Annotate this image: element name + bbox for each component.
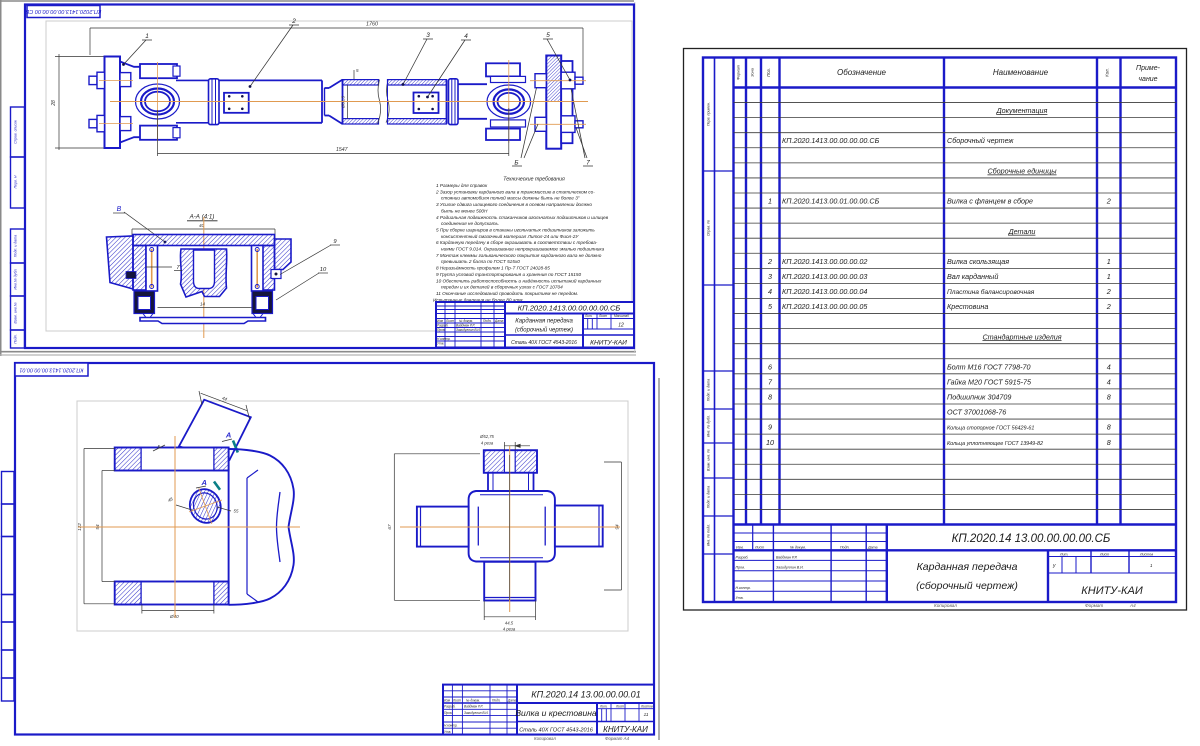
svg-text:Дата: Дата	[494, 319, 504, 323]
svg-text:А-А (4:1): А-А (4:1)	[189, 214, 215, 221]
svg-text:12: 12	[618, 323, 624, 329]
svg-text:2: 2	[291, 18, 296, 25]
svg-text:1760: 1760	[366, 22, 378, 28]
svg-text:Копировал: Копировал	[534, 736, 556, 741]
svg-text:Сборочные единицы: Сборочные единицы	[987, 167, 1057, 176]
svg-text:Пластина балансировочная: Пластина балансировочная	[947, 288, 1035, 296]
svg-text:5: 5	[356, 68, 359, 73]
svg-text:Ø40: Ø40	[169, 614, 179, 619]
svg-text:КП.2020.1413.00.00.00.00.СБ: КП.2020.1413.00.00.00.00.СБ	[518, 304, 621, 313]
svg-text:Документация: Документация	[996, 106, 1048, 115]
svg-text:Подп.: Подп.	[14, 334, 18, 344]
svg-text:Вайдман Р.Р.: Вайдман Р.Р.	[776, 556, 798, 560]
svg-text:Листов: Листов	[640, 705, 653, 709]
svg-text:28: 28	[51, 100, 57, 107]
svg-text:Вилка скользящая: Вилка скользящая	[947, 257, 1009, 266]
svg-text:Вал карданный: Вал карданный	[947, 272, 998, 281]
svg-text:1: 1	[1107, 257, 1111, 266]
svg-text:10: 10	[320, 267, 327, 273]
svg-text:Н.контр.: Н.контр.	[444, 724, 458, 728]
svg-text:Дата: Дата	[507, 699, 517, 703]
svg-text:Изм: Изм	[437, 319, 444, 323]
svg-text:4: 4	[768, 287, 772, 296]
svg-text:А: А	[200, 478, 206, 487]
svg-text:Подп. и дата: Подп. и дата	[706, 486, 710, 509]
svg-text:Лист: Лист	[1099, 552, 1109, 556]
svg-text:(сборочный чертеж): (сборочный чертеж)	[916, 580, 1018, 592]
svg-text:чание: чание	[1138, 76, 1157, 83]
svg-text:КНИТУ-КАИ: КНИТУ-КАИ	[603, 725, 648, 734]
svg-text:Формат: Формат	[1085, 603, 1103, 608]
svg-text:10: 10	[766, 438, 774, 447]
svg-text:Подп.: Подп.	[840, 546, 850, 550]
svg-text:ОСТ 37001068-76: ОСТ 37001068-76	[947, 408, 1006, 417]
svg-text:9: 9	[768, 423, 772, 432]
svg-text:Вилка и крестовина: Вилка и крестовина	[515, 708, 597, 718]
svg-text:7: 7	[176, 265, 180, 271]
svg-text:1: 1	[1107, 272, 1111, 281]
svg-text:Изм: Изм	[444, 699, 451, 703]
svg-text:Взам. инв. №: Взам. инв. №	[706, 449, 710, 471]
svg-text:Изм.: Изм.	[736, 546, 744, 550]
svg-text:Справ. №: Справ. №	[706, 220, 710, 236]
svg-text:Сталь 40Х ГОСТ 4543-2016: Сталь 40Х ГОСТ 4543-2016	[511, 340, 577, 346]
svg-text:Пров.: Пров.	[736, 566, 745, 570]
svg-text:КП.2020.1413.00.00.00.00.СБ: КП.2020.1413.00.00.00.00.СБ	[782, 136, 880, 145]
svg-text:11: 11	[644, 712, 649, 717]
svg-text:8: 8	[1107, 423, 1111, 432]
svg-text:КП.2020.14 13.00.00.00.00.СБ: КП.2020.14 13.00.00.00.00.СБ	[952, 533, 1111, 545]
svg-text:Утв.: Утв.	[444, 730, 451, 734]
svg-text:Утв.: Утв.	[736, 596, 744, 600]
svg-text:Болт М16 ГОСТ 7798-70: Болт М16 ГОСТ 7798-70	[947, 362, 1031, 371]
svg-text:Карданная передача: Карданная передача	[917, 561, 1018, 573]
svg-text:Подп. и дата: Подп. и дата	[14, 235, 18, 258]
svg-text:Формат: Формат	[737, 65, 741, 80]
svg-text:Инв.№ дубл.: Инв.№ дубл.	[14, 268, 18, 289]
svg-text:1: 1	[1150, 563, 1153, 568]
svg-text:№ докум.: № докум.	[790, 546, 806, 550]
svg-text:Приме-: Приме-	[1136, 65, 1161, 72]
svg-text:Инв. № дубл.: Инв. № дубл.	[706, 415, 710, 437]
svg-text:Вайдман Р.Р.: Вайдман Р.Р.	[456, 324, 476, 328]
svg-text:8: 8	[768, 393, 772, 402]
svg-text:Лист: Лист	[452, 699, 462, 703]
svg-text:2: 2	[1106, 197, 1111, 206]
svg-text:Лист: Лист	[615, 705, 625, 709]
svg-text:№ докум.: № докум.	[466, 699, 480, 703]
svg-text:48: 48	[167, 496, 174, 503]
svg-text:7: 7	[768, 378, 773, 387]
svg-text:Загидуллин В.И.: Загидуллин В.И.	[464, 711, 489, 715]
svg-text:Вилка с фланцем в сборе: Вилка с фланцем в сборе	[947, 197, 1033, 206]
svg-text:2: 2	[1106, 287, 1111, 296]
svg-text:2 Зазор установки карданного: 2 Зазор установки карданного вала в тран…	[435, 189, 595, 194]
svg-text:Разраб.: Разраб.	[444, 705, 456, 709]
svg-text:1: 1	[145, 33, 149, 40]
svg-text:превышать 2 балла по ГОСТ 515х: превышать 2 балла по ГОСТ 515х0	[441, 259, 520, 264]
svg-text:Пров.: Пров.	[444, 711, 453, 715]
svg-text:Подп.: Подп.	[492, 699, 501, 703]
svg-text:1: 1	[768, 197, 772, 206]
svg-text:ниями ГОСТ 9.014. Окрашивание: ниями ГОСТ 9.014. Окрашивание непрокраши…	[441, 247, 605, 252]
svg-text:Пров.: Пров.	[437, 328, 446, 332]
svg-text:Кольца уплотняющее ГОСТ 13949-: Кольца уплотняющее ГОСТ 13949-82	[947, 441, 1043, 447]
svg-text:передач и их деталей в сборочн: передач и их деталей в сборочных узлах с…	[441, 284, 563, 290]
svg-text:Листов: Листов	[1139, 552, 1153, 556]
svg-text:В: В	[117, 206, 122, 213]
svg-text:А: А	[225, 431, 231, 440]
svg-text:7 Монтаж клеммы гальваническо: 7 Монтаж клеммы гальванического покрытия…	[436, 253, 602, 258]
svg-text:(сборочный чертеж): (сборочный чертеж)	[515, 327, 573, 334]
svg-text:КП.2020.1413.00.00.00.00 СБ: КП.2020.1413.00.00.00.00 СБ	[25, 8, 101, 14]
svg-text:1 Размеры для справок: 1 Размеры для справок	[436, 183, 488, 188]
svg-text:КНИТУ-КАИ: КНИТУ-КАИ	[1081, 585, 1143, 597]
svg-text:Перв. примен.: Перв. примен.	[706, 102, 710, 126]
svg-text:Разраб.: Разраб.	[736, 556, 749, 560]
svg-text:Крестовина: Крестовина	[947, 302, 988, 311]
svg-text:Масштаб: Масштаб	[614, 314, 629, 318]
svg-text:4 реза: 4 реза	[481, 441, 494, 446]
svg-text:2: 2	[767, 257, 772, 266]
svg-text:Формат А4: Формат А4	[605, 736, 630, 741]
svg-text:44,5: 44,5	[505, 621, 514, 626]
svg-text:Взам. инв.№: Взам. инв.№	[14, 302, 18, 323]
svg-text:КП.2020.1413.00.01.00.00.СБ: КП.2020.1413.00.01.00.00.СБ	[782, 197, 880, 206]
svg-text:Подшипник 304709: Подшипник 304709	[947, 393, 1011, 402]
svg-text:2: 2	[1106, 302, 1111, 311]
svg-text:3: 3	[426, 32, 430, 39]
svg-text:Вайдман Р.Р.: Вайдман Р.Р.	[464, 705, 484, 709]
svg-text:Б: Б	[514, 160, 518, 167]
svg-text:КП.2020.1413.00.00.00.02: КП.2020.1413.00.00.00.02	[782, 257, 867, 266]
svg-text:8: 8	[1107, 438, 1111, 447]
svg-text:Карданная передача: Карданная передача	[515, 319, 573, 325]
svg-text:5: 5	[546, 32, 550, 39]
svg-text:стоянии автомобиля полной масс: стоянии автомобиля полной массы должны б…	[441, 195, 580, 201]
svg-text:Утв.: Утв.	[437, 342, 444, 346]
svg-text:1547: 1547	[336, 147, 349, 153]
svg-text:Н.контр.: Н.контр.	[437, 337, 451, 341]
svg-text:Загидуллин В.И.: Загидуллин В.И.	[776, 566, 804, 570]
svg-text:Поз.: Поз.	[766, 68, 771, 77]
svg-text:№ докум.: № докум.	[459, 319, 473, 323]
svg-text:Справ. список: Справ. список	[14, 120, 18, 144]
svg-text:Кольца стопорное ГОСТ 56429-61: Кольца стопорное ГОСТ 56429-61	[947, 426, 1034, 432]
svg-text:5 При сборке шарниров в стака: 5 При сборке шарниров в стаканы игольчат…	[436, 227, 595, 232]
svg-text:14: 14	[200, 302, 206, 307]
svg-text:Технические требования: Технические требования	[503, 177, 565, 183]
svg-text:Разраб.: Разраб.	[437, 324, 449, 328]
svg-text:Лит.: Лит.	[1059, 552, 1068, 556]
svg-text:Подп.: Подп.	[483, 319, 492, 323]
svg-text:8: 8	[1107, 393, 1111, 402]
svg-text:Загидуллин В.И.: Загидуллин В.И.	[456, 328, 481, 332]
svg-text:Лист: Лист	[754, 546, 764, 550]
svg-text:3 Усилие сдвига шлицевого сое: 3 Усилие сдвига шлицевого соединения в о…	[436, 202, 592, 207]
svg-text:Лит.: Лит.	[599, 705, 608, 709]
svg-text:Наименование: Наименование	[993, 68, 1049, 77]
svg-text:Дата: Дата	[867, 546, 877, 550]
svg-text:Сборочный чертеж: Сборочный чертеж	[947, 136, 1014, 145]
svg-text:Инв. № подл.: Инв. № подл.	[706, 524, 710, 546]
svg-text:3: 3	[768, 272, 772, 281]
svg-text:Подп. и дата: Подп. и дата	[706, 379, 710, 402]
svg-text:6: 6	[768, 362, 772, 371]
svg-text:4: 4	[464, 33, 468, 40]
svg-text:Гайка М20 ГОСТ 5915-75: Гайка М20 ГОСТ 5915-75	[947, 378, 1032, 387]
svg-text:Лист: Лист	[598, 314, 608, 318]
svg-text:КП.2020.1413.00.00.00.03: КП.2020.1413.00.00.00.03	[782, 272, 867, 281]
svg-text:9 Группа условий транспортиро: 9 Группа условий транспортирования и хра…	[436, 271, 581, 277]
svg-text:4 Радиальная подвижность стак: 4 Радиальная подвижность стаканчиков иго…	[436, 215, 609, 220]
svg-text:67: 67	[387, 524, 392, 530]
svg-text:4: 4	[1107, 362, 1111, 371]
svg-text:Перв. Н: Перв. Н	[14, 175, 18, 188]
svg-text:4 реза: 4 реза	[503, 627, 516, 632]
svg-text:КП.2020.14 13.00.00.00.01: КП.2020.14 13.00.00.00.01	[531, 690, 640, 700]
svg-text:Стандартные изделия: Стандартные изделия	[982, 332, 1061, 341]
svg-text:А4: А4	[1129, 603, 1136, 608]
svg-text:консистентный смазочный матери: консистентный смазочный материал Литол-2…	[441, 233, 579, 239]
svg-text:11 Окончание исследований пров: 11 Окончание исследований проводить покр…	[436, 290, 578, 296]
svg-text:у: у	[1052, 563, 1056, 569]
svg-text:КНИТУ-КАИ: КНИТУ-КАИ	[590, 340, 627, 347]
svg-text:8 Неразъёмность профилем 1 Пр: 8 Неразъёмность профилем 1 Пр-Т ГОСТ 240…	[436, 266, 550, 271]
svg-text:КП.2020.1413.00.00.00.01: КП.2020.1413.00.00.00.01	[19, 366, 83, 372]
svg-text:Сталь 40Х ГОСТ 4543-2016: Сталь 40Х ГОСТ 4543-2016	[519, 728, 594, 734]
svg-text:4: 4	[1107, 378, 1111, 387]
svg-text:Детали: Детали	[1008, 227, 1036, 236]
svg-text:Кол.: Кол.	[1105, 68, 1110, 77]
svg-text:Ø52,75: Ø52,75	[479, 434, 494, 439]
svg-text:5: 5	[768, 302, 773, 311]
svg-text:Ø82,5: Ø82,5	[341, 95, 346, 109]
svg-text:Лит.: Лит.	[584, 314, 593, 318]
svg-text:Лист: Лист	[445, 319, 455, 323]
svg-text:КП.2020.1413.00.00.00.04: КП.2020.1413.00.00.00.04	[782, 287, 867, 296]
svg-text:55: 55	[234, 509, 239, 514]
svg-text:7: 7	[586, 160, 590, 167]
svg-text:Копировал: Копировал	[934, 603, 957, 608]
svg-text:Н.контр.: Н.контр.	[736, 586, 751, 590]
svg-text:Зона: Зона	[751, 68, 755, 77]
svg-text:6 Карданную передачу в сборе: 6 Карданную передачу в сборе окрашивать …	[436, 240, 598, 245]
svg-text:быть не менее 500Н: быть не менее 500Н	[441, 208, 488, 213]
svg-text:Обозначение: Обозначение	[837, 68, 887, 77]
svg-text:КП.2020.1413.00.00.00.05: КП.2020.1413.00.00.00.05	[782, 302, 868, 311]
svg-text:10 Обеспечить работоспособност: 10 Обеспечить работоспособность и надёжн…	[436, 277, 602, 283]
svg-text:9: 9	[333, 239, 337, 245]
svg-text:соединения не допускать.: соединения не допускать.	[441, 221, 499, 226]
